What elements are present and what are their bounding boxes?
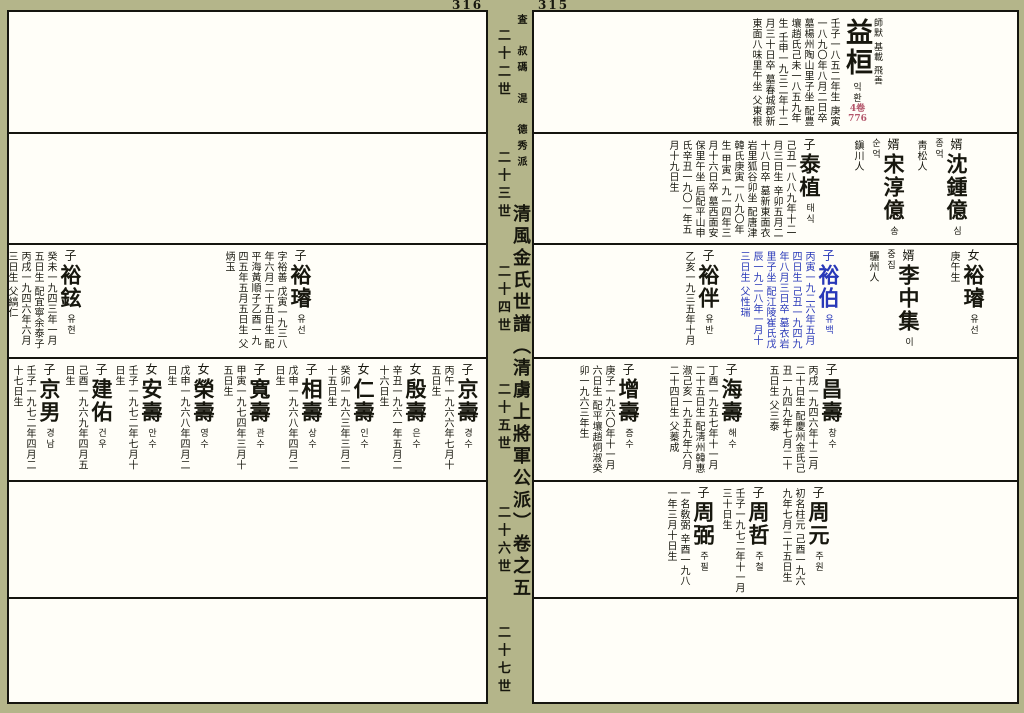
person-entry: 子裕璿유선字裕善 戊寅一九三八年六月二十五日生 配平海黃順子乙酉一九四五年五月五… <box>222 249 311 353</box>
hangul-reading: 주원 <box>813 551 823 573</box>
person-name-column: 子建佑건우 <box>91 363 112 476</box>
person-entry: 子海壽해수丁酉一九五七年十一月二十五日生 配淸州韓惠淑己亥一九五九年六月二十四日… <box>666 363 742 476</box>
relation-prefix: 婿 <box>949 138 963 151</box>
relation-prefix: 子 <box>94 363 108 376</box>
person-entry: 婿沈鍾億심종억靑松人 <box>914 138 967 239</box>
genealogy-book-spread: 316 315 子裕璿유선字裕善 戊寅一九三八年六月二十五日生 配平海黃順子乙酉… <box>0 0 1024 713</box>
band-gen-27 <box>9 599 486 700</box>
person-entry: 女殷壽은수辛丑一九六一年五月二十六日生 <box>376 363 426 476</box>
band-gen-26: 子周元주원初名柱元 己酉一九六九年七月二十五日生子周哲주철壬子一九七二年十一月三… <box>534 482 1017 599</box>
band-gen-26 <box>9 482 486 599</box>
entry-details: 鎭川人 <box>851 138 864 239</box>
person-name-column: 子裕鉉유현 <box>60 249 81 353</box>
person-name: 裕璿 <box>961 264 986 310</box>
entry-details: 一名敎弼 辛酉一九八一年三月十日生 <box>664 486 690 593</box>
person-name: 周元 <box>806 501 831 547</box>
person-name: 殷壽 <box>403 378 428 424</box>
person-entry: 子周哲주철壬子一九七二年十一月三十日生 <box>719 486 769 593</box>
person-name-column: 子海壽해수 <box>721 363 742 476</box>
band-gen-22: 師默 基載 飛善益桓익환4卷776壬子一八五二年生 庚寅一八九〇年八月二日卒 墓… <box>534 12 1017 134</box>
person-entry: 子增壽증수庚子一九六〇年十一月六日生 配平壤趙炯淑癸卯一九六三年生 <box>576 363 639 476</box>
branch-header: 査 叔碼 湜 德秀派 <box>515 14 526 172</box>
spine-text-column: 査 叔碼 湜 德秀派 清風金氏世譜（清虜上將軍公派）卷之五 <box>510 14 531 698</box>
relation-prefix: 女 <box>966 249 980 262</box>
person-entry: 女安壽안수壬子一九七二年七月十日生 <box>112 363 162 476</box>
relation-prefix: 子 <box>460 363 474 376</box>
person-name-column: 子裕伯유백 <box>818 249 839 353</box>
entry-details: 壬子一九七二年四月二十七日生 <box>10 363 36 476</box>
hangul-reading: 경남 <box>44 428 54 450</box>
person-name-column: 女安壽안수 <box>141 363 162 476</box>
person-name-column: 子京壽경수 <box>457 363 478 476</box>
hangul-reading: 창수 <box>826 428 836 450</box>
hangul-reading: 유선 <box>295 314 305 336</box>
person-entry: 女榮壽영수戊申一九六八年四月二日生 <box>164 363 214 476</box>
person-name-column: 婿李中集이중집 <box>882 249 919 353</box>
entry-details: 初名柱元 己酉一九六九年七月二十五日生 <box>779 486 805 593</box>
relation-prefix: 女 <box>196 363 210 376</box>
relation-prefix: 子 <box>821 249 835 262</box>
entry-details: 壬子一九七二年十一月三十日生 <box>719 486 745 593</box>
person-name: 建佑 <box>89 378 114 424</box>
hangul-reading: 상수 <box>306 428 316 450</box>
relation-prefix: 子 <box>696 486 710 499</box>
person-name-column: 子增壽증수 <box>618 363 639 476</box>
entry-details: 庚午生 <box>947 249 960 353</box>
person-name: 裕璿 <box>288 264 313 310</box>
person-entry: 子裕伯유백丙寅一九二六年五月四日生 己丑一九四九年八月三日卒 墓衣岩里子坐 配江… <box>737 249 839 353</box>
entry-details: 丙午一九六六年七月十五日生 <box>428 363 454 476</box>
band-gen-23: 婿沈鍾億심종억靑松人婿宋淳億송순억鎭川人子泰植태식己丑一八八九年十二月三日生 辛… <box>534 134 1017 245</box>
relation-prefix: 子 <box>824 363 838 376</box>
band-gen-25: 子京壽경수丙午一九六六年七月十五日生女殷壽은수辛丑一九六一年五月二十六日生女仁壽… <box>9 359 486 482</box>
volume-page-ref: 4卷776 <box>848 104 867 124</box>
relation-prefix: 子 <box>42 363 56 376</box>
person-entry: 子周元주원初名柱元 己酉一九六九年七月二十五日生 <box>779 486 829 593</box>
band-gen-24: 女裕璿유선庚午生婿李中集이중집驪州人子裕伯유백丙寅一九二六年五月四日生 己丑一九… <box>534 245 1017 359</box>
person-entry: 女仁壽인수癸卯一九六三年三月二十五日生 <box>324 363 374 476</box>
entry-details: 癸未一九四三年一月五日生 配宜寧余泰子丙戌一九四六年六月三日生 父縞仁 <box>5 249 57 353</box>
hangul-reading: 태식 <box>804 203 814 225</box>
band-gen-23 <box>9 134 486 245</box>
band-gen-25: 子昌壽창수丙戌一九四六年十二月二十日生 配慶州金氏己丑一九四九年七月二十五日生 … <box>534 359 1017 482</box>
person-name-column: 子裕璿유선 <box>290 249 311 353</box>
person-name: 京壽 <box>455 378 480 424</box>
generation-label: 二十七世 <box>494 625 510 697</box>
person-name-column: 子泰植태식 <box>799 138 820 239</box>
entry-details: 丙寅一九二六年五月四日生 己丑一九四九年八月三日卒 墓衣岩里子坐 配江陵崔氏戊辰… <box>737 249 815 353</box>
person-entry: 子京男경남壬子一九七二年四月二十七日生 <box>10 363 60 476</box>
hangul-reading: 증수 <box>623 428 633 450</box>
person-entry: 子京壽경수丙午一九六六年七月十五日生 <box>428 363 478 476</box>
entry-details: 辛丑一九六一年五月二十六日生 <box>376 363 402 476</box>
relation-prefix: 子 <box>811 486 825 499</box>
hangul-reading: 안수 <box>146 428 156 450</box>
entry-details: 丁酉一九五七年十一月二十五日生 配淸州韓惠淑己亥一九五九年六月二十四日生 父蓁成 <box>666 363 718 476</box>
hangul-reading: 은수 <box>410 428 420 450</box>
spine: 査 叔碼 湜 德秀派 清風金氏世譜（清虜上將軍公派）卷之五 二十二世二十三世二十… <box>489 0 532 713</box>
hangul-reading: 관수 <box>254 428 264 450</box>
person-name: 周弼 <box>691 501 716 547</box>
person-entry: 子裕伴유반乙亥一九三五年十月 <box>682 249 719 353</box>
ref-volume: 4卷 <box>848 104 867 114</box>
person-name: 榮壽 <box>191 378 216 424</box>
hangul-reading: 인수 <box>358 428 368 450</box>
person-name: 相壽 <box>299 378 324 424</box>
hangul-reading: 익환 <box>851 82 861 104</box>
person-name-column: 女榮壽영수 <box>193 363 214 476</box>
relation-prefix: 子 <box>304 363 318 376</box>
person-name-column: 子裕伴유반 <box>698 249 719 353</box>
entry-details: 乙亥一九三五年十月 <box>682 249 695 353</box>
person-name: 泰植 <box>797 153 822 199</box>
entry-details: 壬子一八五二年生 庚寅一八九〇年八月二日卒 墓楊州陶山里子坐 配豊壤趙氏己未一八… <box>749 16 840 128</box>
entry-details: 戊申一九六八年四月二日生 <box>164 363 190 476</box>
hangul-reading: 건우 <box>96 428 106 450</box>
generation-label: 二十五世 <box>494 382 510 454</box>
entry-details: 壬子一九七二年七月十日生 <box>112 363 138 476</box>
person-name: 海壽 <box>719 378 744 424</box>
person-entry: 子寬壽관수甲寅一九七四年三月十五日生 <box>220 363 270 476</box>
entry-details: 甲寅一九七四年三月十五日生 <box>220 363 246 476</box>
person-name: 安壽 <box>139 378 164 424</box>
person-name: 昌壽 <box>819 378 844 424</box>
person-entry: 婿李中集이중집驪州人 <box>866 249 919 353</box>
person-entry: 婿宋淳億송순억鎭川人 <box>851 138 904 239</box>
person-name-column: 婿宋淳億송순억 <box>867 138 904 239</box>
person-entry: 師默 基載 飛善益桓익환4卷776壬子一八五二年生 庚寅一八九〇年八月二日卒 墓… <box>749 16 882 128</box>
person-name: 京男 <box>37 378 62 424</box>
relation-prefix: 女 <box>144 363 158 376</box>
entry-details: 戊申一九六八年四月二日生 <box>272 363 298 476</box>
entry-details: 字裕善 戊寅一九三八年六月二十五日生 配平海黃順子乙酉一九四五年五月五日生 父炳… <box>222 249 287 353</box>
person-entry: 子裕鉉유현癸未一九四三年一月五日生 配宜寧余泰子丙戌一九四六年六月三日生 父縞仁 <box>5 249 81 353</box>
generation-label: 二十二世 <box>494 28 510 100</box>
person-name: 增壽 <box>616 378 641 424</box>
person-name-column: 子相壽상수 <box>301 363 322 476</box>
entry-details: 靑松人 <box>914 138 927 239</box>
person-name-column: 子昌壽창수 <box>821 363 842 476</box>
person-name: 沈鍾億 <box>944 153 969 222</box>
person-name-column: 女殷壽은수 <box>405 363 426 476</box>
person-entry: 子泰植태식己丑一八八九年十二月三日生 辛卯五月二十八日卒 墓新東面衣岩里狐谷卯坐… <box>666 138 820 239</box>
person-entry: 子周弼주필一名敎弼 辛酉一九八一年三月十日生 <box>664 486 714 593</box>
person-name-column: 子周元주원 <box>808 486 829 593</box>
hangul-reading: 유현 <box>65 314 75 336</box>
person-name: 裕鉉 <box>58 264 83 310</box>
hangul-reading: 해수 <box>726 428 736 450</box>
entry-details: 庚子一九六〇年十一月六日生 配平壤趙炯淑癸卯一九六三年生 <box>576 363 615 476</box>
hangul-reading: 경수 <box>462 428 472 450</box>
entry-details: 驪州人 <box>866 249 879 353</box>
person-name: 寬壽 <box>247 378 272 424</box>
relation-prefix: 子 <box>724 363 738 376</box>
generation-label: 二十六世 <box>494 505 510 577</box>
hangul-reading: 주철 <box>753 551 763 573</box>
hangul-reading: 영수 <box>198 428 208 450</box>
person-entry: 子昌壽창수丙戌一九四六年十二月二十日生 配慶州金氏己丑一九四九年七月二十五日生 … <box>766 363 842 476</box>
person-entry: 子建佑건우己酉一九六九年四月五日生 <box>62 363 112 476</box>
entry-details: 己酉一九六九年四月五日生 <box>62 363 88 476</box>
book-title: 清風金氏世譜（清虜上將軍公派）卷之五 <box>510 204 531 600</box>
generation-label: 二十三世 <box>494 150 510 222</box>
person-name-column: 子周哲주철 <box>748 486 769 593</box>
band-gen-22 <box>9 12 486 134</box>
person-name: 李中集 <box>896 264 921 333</box>
relation-prefix: 子 <box>802 138 816 151</box>
relation-prefix: 子 <box>63 249 77 262</box>
relation-prefix: 女 <box>356 363 370 376</box>
annotation-note: 師默 基載 飛善 <box>871 16 882 128</box>
relation-prefix: 女 <box>408 363 422 376</box>
relation-prefix: 子 <box>252 363 266 376</box>
relation-prefix: 子 <box>293 249 307 262</box>
hangul-reading: 주필 <box>698 551 708 573</box>
entry-details: 丙戌一九四六年十二月二十日生 配慶州金氏己丑一九四九年七月二十五日生 父三泰 <box>766 363 818 476</box>
person-name: 裕伯 <box>816 264 841 310</box>
hangul-reading: 유선 <box>968 314 978 336</box>
hangul-reading: 유백 <box>823 314 833 336</box>
person-name: 仁壽 <box>351 378 376 424</box>
person-name-column: 女仁壽인수 <box>353 363 374 476</box>
right-page: 師默 基載 飛善益桓익환4卷776壬子一八五二年生 庚寅一八九〇年八月二日卒 墓… <box>532 10 1019 704</box>
relation-prefix: 子 <box>621 363 635 376</box>
person-name: 周哲 <box>746 501 771 547</box>
ref-page: 776 <box>848 114 867 124</box>
person-name-column: 子寬壽관수 <box>249 363 270 476</box>
left-page: 子裕璿유선字裕善 戊寅一九三八年六月二十五日生 配平海黃順子乙酉一九四五年五月五… <box>7 10 488 704</box>
entry-details: 癸卯一九六三年三月二十五日生 <box>324 363 350 476</box>
relation-prefix: 子 <box>751 486 765 499</box>
person-name-column: 婿沈鍾億심종억 <box>930 138 967 239</box>
person-entry: 女裕璿유선庚午生 <box>947 249 984 353</box>
person-name-column: 子京男경남 <box>39 363 60 476</box>
relation-prefix: 婿 <box>886 138 900 151</box>
relation-prefix: 子 <box>701 249 715 262</box>
band-gen-24: 子裕璿유선字裕善 戊寅一九三八年六月二十五日生 配平海黃順子乙酉一九四五年五月五… <box>9 245 486 359</box>
person-name: 裕伴 <box>696 264 721 310</box>
person-entry: 子相壽상수戊申一九六八年四月二日生 <box>272 363 322 476</box>
entry-details: 己丑一八八九年十二月三日生 辛卯五月二十八日卒 墓新東面衣岩里狐谷卯坐 配唐津韓… <box>666 138 796 239</box>
person-name: 益桓 <box>841 18 872 78</box>
hangul-reading: 유반 <box>703 314 713 336</box>
generation-label: 二十四世 <box>494 264 510 336</box>
person-name-column: 子周弼주필 <box>693 486 714 593</box>
person-name-column: 女裕璿유선 <box>963 249 984 353</box>
relation-prefix: 婿 <box>901 249 915 262</box>
band-gen-27 <box>534 599 1017 700</box>
person-name-column: 益桓익환4卷776 <box>843 16 870 128</box>
person-name: 宋淳億 <box>881 153 906 222</box>
